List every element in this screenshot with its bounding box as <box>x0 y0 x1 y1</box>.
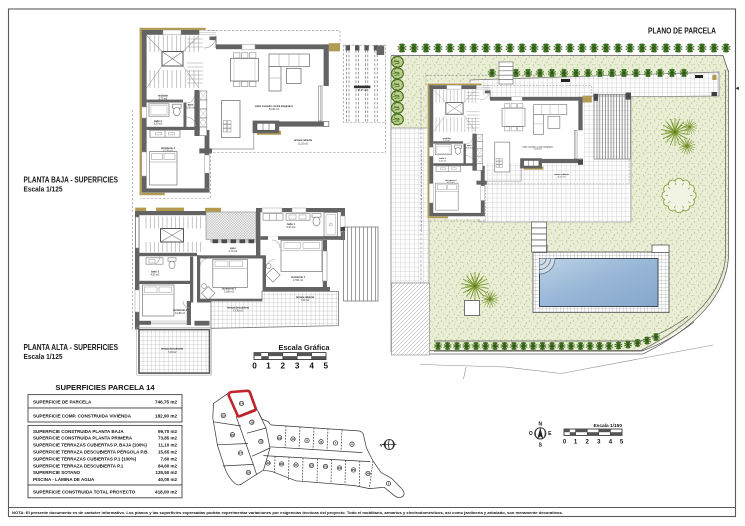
svg-text:SUPERFICIE CONSTRUIDA TOTAL PR: SUPERFICIE CONSTRUIDA TOTAL PROYECTO <box>33 490 136 495</box>
svg-text:15,65 m2: 15,65 m2 <box>158 450 178 455</box>
svg-text:3,30 m2: 3,30 m2 <box>186 106 195 109</box>
svg-text:SUPERFICIE SOTANO: SUPERFICIE SOTANO <box>33 470 81 475</box>
svg-text:4,80 m2: 4,80 m2 <box>151 274 160 277</box>
svg-text:19: 19 <box>266 461 270 465</box>
svg-text:2: 2 <box>281 361 286 370</box>
svg-text:17: 17 <box>239 451 243 455</box>
svg-text:SUPERFICIE TERRAZAS CUBIERTAS: SUPERFICIE TERRAZAS CUBIERTAS P.1 (100%) <box>33 456 137 461</box>
svg-text:O: O <box>529 431 533 437</box>
svg-text:11: 11 <box>278 436 281 440</box>
svg-text:15: 15 <box>222 414 226 418</box>
svg-text:Escala 1/125: Escala 1/125 <box>24 352 63 361</box>
svg-text:746,75 m2: 746,75 m2 <box>155 400 177 405</box>
svg-text:SUPERFICIES PARCELA 14: SUPERFICIES PARCELA 14 <box>55 383 155 392</box>
svg-text:3,75 m2: 3,75 m2 <box>159 97 168 100</box>
svg-text:N: N <box>538 422 542 428</box>
svg-text:418,00 m2: 418,00 m2 <box>155 490 177 495</box>
svg-text:2,70 m2: 2,70 m2 <box>229 250 238 253</box>
svg-text:5,60 m2: 5,60 m2 <box>287 226 296 229</box>
svg-text:99,70 m2: 99,70 m2 <box>158 429 178 434</box>
svg-text:182,90 m2: 182,90 m2 <box>155 413 177 418</box>
svg-text:4: 4 <box>309 361 314 370</box>
svg-text:5: 5 <box>324 361 329 370</box>
svg-text:PISCINA - LÁMINA DE AGUA: PISCINA - LÁMINA DE AGUA <box>33 476 95 482</box>
svg-text:12: 12 <box>259 440 263 444</box>
svg-text:SUPERFICIE COMP. CONSTRUIDA VI: SUPERFICIE COMP. CONSTRUIDA VIVIENDA <box>33 413 132 418</box>
svg-text:NOTA: El presente documento es: NOTA: El presente documento es de caráct… <box>12 511 563 515</box>
svg-text:PLANO DE PARCELA: PLANO DE PARCELA <box>648 27 716 36</box>
svg-text:15,65 m2: 15,65 m2 <box>358 90 368 92</box>
svg-text:13: 13 <box>250 420 254 424</box>
svg-text:10: 10 <box>291 437 295 441</box>
svg-text:0: 0 <box>252 361 257 370</box>
svg-text:3: 3 <box>295 361 300 370</box>
svg-text:PLANTA BAJA - SUPERFICIES: PLANTA BAJA - SUPERFICIES <box>24 175 119 184</box>
svg-text:23: 23 <box>324 465 328 469</box>
svg-text:SUPERFICIE TERRAZA DESCUBIERTA: SUPERFICIE TERRAZA DESCUBIERTA P.1 <box>33 463 124 468</box>
svg-text:21: 21 <box>294 463 298 467</box>
svg-text:7,60 m2: 7,60 m2 <box>160 456 177 461</box>
svg-text:16: 16 <box>231 433 235 437</box>
svg-text:40,00 m2: 40,00 m2 <box>158 477 178 482</box>
svg-text:26: 26 <box>366 472 370 476</box>
svg-text:17,30 m2: 17,30 m2 <box>233 310 244 313</box>
svg-text:Escala 1/125: Escala 1/125 <box>24 185 63 194</box>
svg-text:14: 14 <box>240 402 244 406</box>
svg-text:51,60 m2: 51,60 m2 <box>269 108 280 111</box>
svg-text:SUPERFICIE CONSTRUIDA PLANTA B: SUPERFICIE CONSTRUIDA PLANTA BAJA <box>33 429 124 434</box>
svg-text:11,10 m2: 11,10 m2 <box>158 443 177 448</box>
svg-text:SUPERFICIE DE PARCELA: SUPERFICIE DE PARCELA <box>33 400 92 405</box>
svg-text:SUPERFICIE CONSTRUIDA PLANTA P: SUPERFICIE CONSTRUIDA PLANTA PRIMERA <box>33 436 133 441</box>
svg-text:84,60 m2: 84,60 m2 <box>158 463 178 468</box>
svg-text:135,50 m2: 135,50 m2 <box>155 470 177 475</box>
svg-text:Escala Gráfica: Escala Gráfica <box>279 343 331 352</box>
svg-text:PLANTA ALTA - SUPERFICIES: PLANTA ALTA - SUPERFICIES <box>24 343 119 352</box>
svg-text:SUPERFICIE TERRAZAS CUBIERTAS: SUPERFICIE TERRAZAS CUBIERTAS P. BAJA (1… <box>33 443 147 448</box>
svg-text:22: 22 <box>310 464 314 468</box>
svg-text:18: 18 <box>247 471 251 475</box>
svg-text:7,20 m2: 7,20 m2 <box>168 351 177 354</box>
svg-text:7,60 m2: 7,60 m2 <box>301 299 310 302</box>
svg-text:24: 24 <box>338 466 342 470</box>
svg-text:14,35 m2: 14,35 m2 <box>175 312 186 315</box>
svg-text:25: 25 <box>352 468 356 472</box>
svg-text:11,10 m2: 11,10 m2 <box>298 142 308 145</box>
svg-text:3,20 m2: 3,20 m2 <box>154 123 163 126</box>
svg-text:17,80 m2: 17,80 m2 <box>293 279 304 282</box>
svg-text:20: 20 <box>280 462 284 466</box>
svg-text:SUPERFICIE TERRAZA DESCUBIERTA: SUPERFICIE TERRAZA DESCUBIERTA PÉRGOLA P… <box>33 448 149 455</box>
svg-text:Escala 1/150: Escala 1/150 <box>593 423 622 429</box>
svg-text:1: 1 <box>266 361 271 370</box>
svg-text:73,85 m2: 73,85 m2 <box>158 436 178 441</box>
svg-text:13,65 m2: 13,65 m2 <box>224 291 235 294</box>
